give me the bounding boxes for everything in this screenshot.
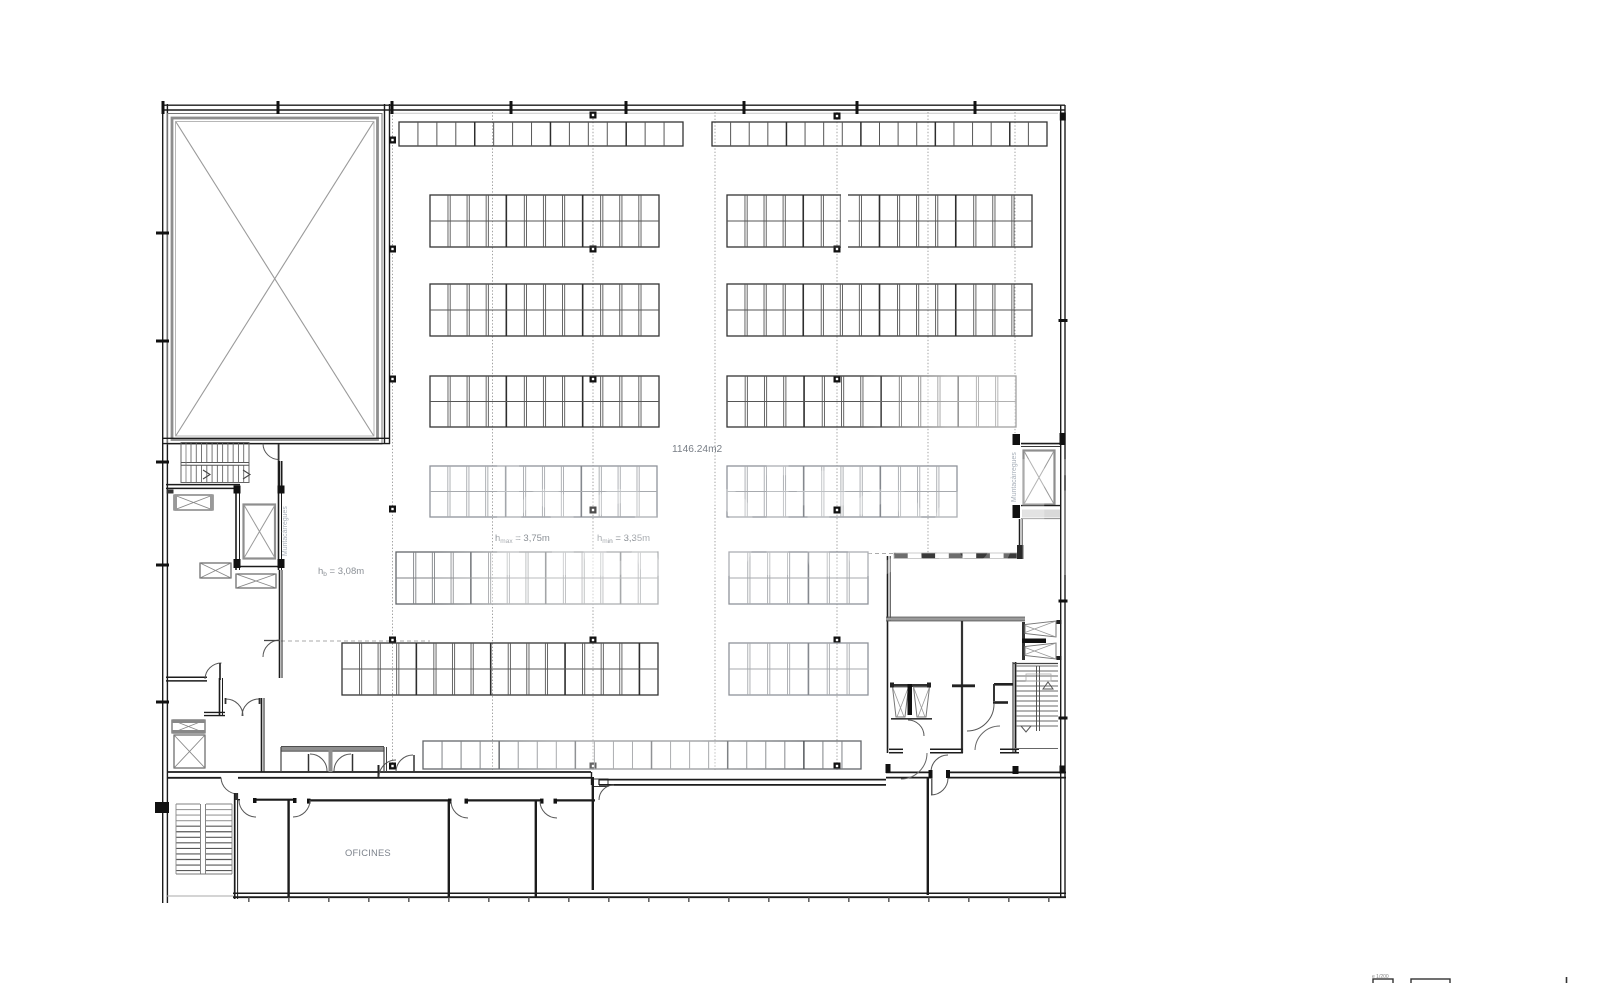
svg-text:habitaclia: habitaclia — [486, 430, 1180, 609]
svg-text:OFICINES: OFICINES — [345, 847, 391, 858]
svg-text:Muntacàrregues: Muntacàrregues — [282, 506, 289, 556]
